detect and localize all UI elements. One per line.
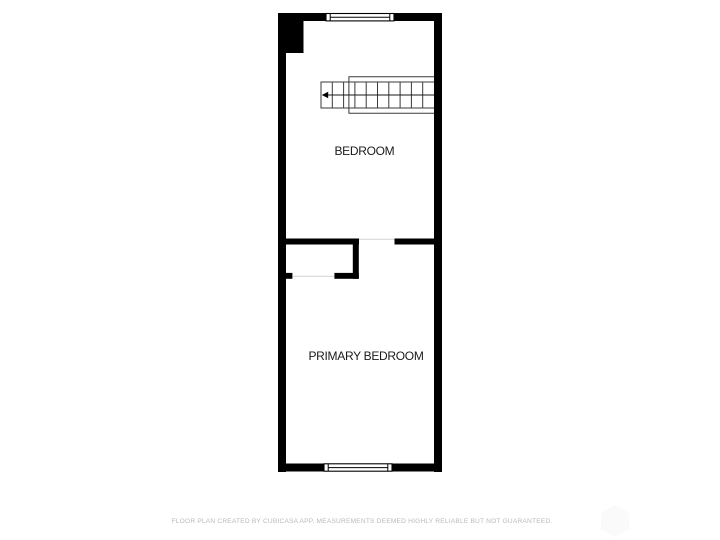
- svg-text:BEDROOM: BEDROOM: [334, 144, 394, 158]
- svg-text:FLOOR PLAN CREATED BY CUBICASA: FLOOR PLAN CREATED BY CUBICASA APP. MEAS…: [172, 518, 553, 525]
- svg-text:PRIMARY BEDROOM: PRIMARY BEDROOM: [308, 349, 423, 363]
